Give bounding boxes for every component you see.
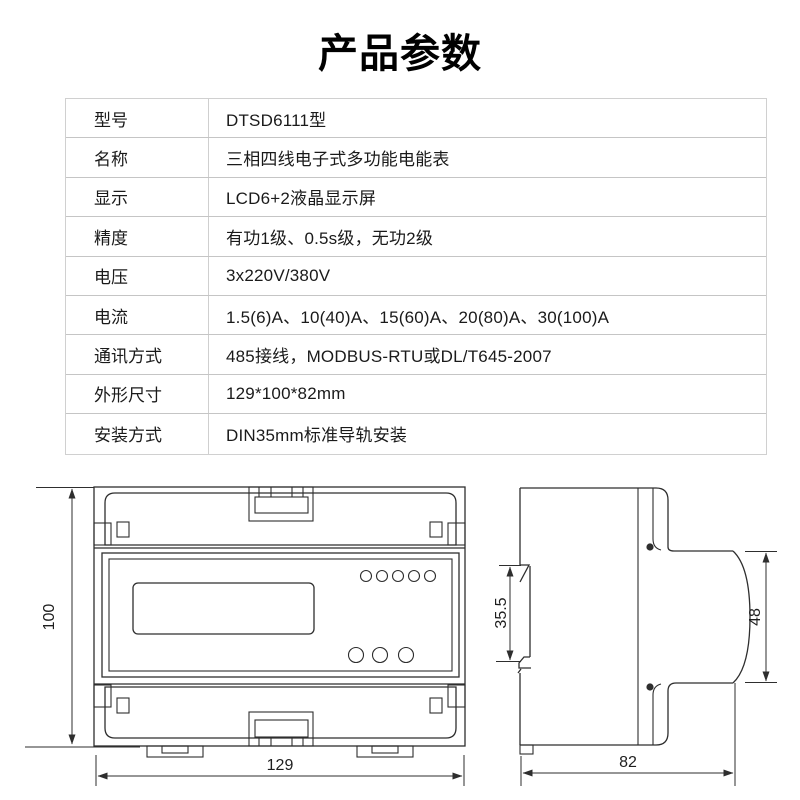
din-rail-hook: [518, 657, 531, 673]
table-row-voltage: 电压 3x220V/380V: [66, 257, 766, 296]
front-view-drawing: [94, 487, 465, 757]
side-screw-top: [646, 543, 653, 550]
spec-value: LCD6+2液晶显示屏: [209, 178, 766, 216]
face-frame-inner: [109, 559, 452, 671]
spec-label: 型号: [66, 99, 209, 137]
spec-value: 三相四线电子式多功能电能表: [209, 138, 766, 176]
spec-value: 有功1级、0.5s级，无功2级: [209, 217, 766, 255]
dim-face-label: 48: [747, 608, 764, 626]
tab-top-left: [94, 523, 111, 545]
spec-value: DIN35mm标准导轨安装: [209, 414, 766, 453]
screw-top-right: [430, 522, 442, 537]
table-row-communication: 通讯方式 485接线，MODBUS-RTU或DL/T645-2007: [66, 335, 766, 374]
table-row-display: 显示 LCD6+2液晶显示屏: [66, 178, 766, 217]
spec-label: 显示: [66, 178, 209, 216]
face-frame-outer: [102, 553, 459, 677]
screw-bottom-left: [117, 698, 129, 713]
spec-label: 通讯方式: [66, 335, 209, 373]
spec-label: 电压: [66, 257, 209, 295]
dim-depth-label: 82: [619, 754, 637, 771]
dim-din-slot-label: 35.5: [493, 597, 510, 628]
spec-value: 129*100*82mm: [209, 375, 766, 413]
screw-top-left: [117, 522, 129, 537]
spec-label: 电流: [66, 296, 209, 334]
spec-label: 安装方式: [66, 414, 209, 453]
screw-bottom-right: [430, 698, 442, 713]
dim-width-label: 129: [267, 757, 294, 774]
top-rail-clip: [249, 487, 313, 521]
spec-value: 3x220V/380V: [209, 257, 766, 295]
dim-height-label: 100: [41, 604, 58, 631]
spec-label: 外形尺寸: [66, 375, 209, 413]
side-dimensions: [496, 552, 777, 787]
table-row-accuracy: 精度 有功1级、0.5s级，无功2级: [66, 217, 766, 256]
table-row-name: 名称 三相四线电子式多功能电能表: [66, 138, 766, 177]
front-dimensions: [25, 488, 464, 787]
mounting-feet: [147, 746, 413, 757]
spec-label: 精度: [66, 217, 209, 255]
table-row-model: 型号 DTSD6111型: [66, 99, 766, 138]
side-screw-bottom: [646, 683, 653, 690]
spec-value: 485接线，MODBUS-RTU或DL/T645-2007: [209, 335, 766, 373]
spec-value: 1.5(6)A、10(40)A、15(60)A、20(80)A、30(100)A: [209, 296, 766, 334]
meter-buttons: [349, 648, 414, 663]
indicator-leds: [361, 571, 436, 582]
top-terminal-cover: [105, 493, 456, 545]
table-row-current: 电流 1.5(6)A、10(40)A、15(60)A、20(80)A、30(10…: [66, 296, 766, 335]
lcd-window: [133, 583, 314, 634]
table-row-size: 外形尺寸 129*100*82mm: [66, 375, 766, 414]
bottom-rail-clip: [249, 712, 313, 746]
tab-bottom-left: [94, 685, 111, 707]
meter-front-body: [94, 487, 465, 746]
table-row-mounting: 安装方式 DIN35mm标准导轨安装: [66, 414, 766, 453]
page-title: 产品参数: [0, 21, 800, 79]
side-view-drawing: [518, 488, 750, 754]
spec-table: 型号 DTSD6111型 名称 三相四线电子式多功能电能表 显示 LCD6+2液…: [65, 98, 767, 455]
dimension-drawing: 100 129 35.5 48 82: [0, 460, 800, 800]
spec-label: 名称: [66, 138, 209, 176]
spec-value: DTSD6111型: [209, 99, 766, 137]
